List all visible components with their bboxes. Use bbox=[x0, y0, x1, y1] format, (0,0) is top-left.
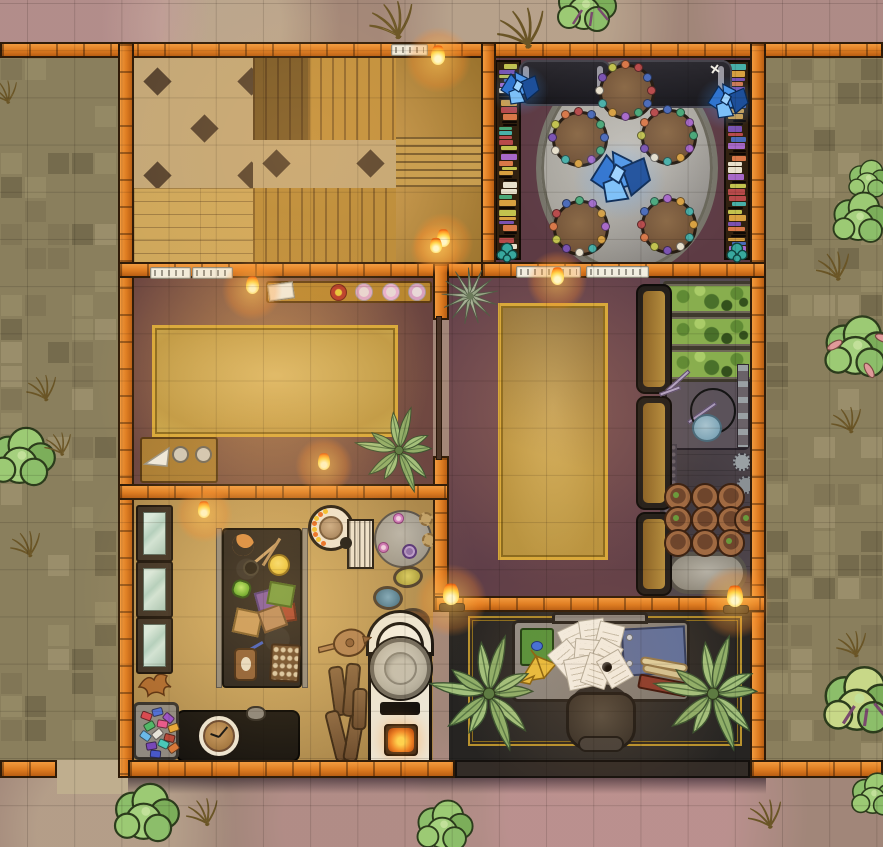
stone-wall bbox=[118, 42, 134, 778]
hall-checker-tile-a bbox=[134, 58, 253, 188]
gold-origami-bird bbox=[510, 648, 562, 692]
office-chair-back bbox=[578, 736, 624, 752]
stone-pot bbox=[733, 453, 751, 471]
hall-bench-rows-lower bbox=[253, 188, 396, 262]
cloth-square-green bbox=[266, 581, 296, 608]
dragon-figurine bbox=[136, 670, 176, 702]
wood-railing bbox=[436, 316, 442, 460]
gear-piece bbox=[419, 512, 433, 526]
potion-flower-pink bbox=[378, 542, 389, 553]
yard-right-cobbles bbox=[766, 58, 883, 760]
small-kettle bbox=[246, 706, 266, 721]
kiln-basin-inner bbox=[384, 652, 417, 685]
stone-wall bbox=[750, 42, 766, 778]
cloth-clasp bbox=[626, 660, 633, 667]
stone-wall bbox=[433, 456, 449, 612]
flower-plate bbox=[355, 283, 373, 301]
dial-knob bbox=[340, 537, 352, 549]
dining-gold-rug bbox=[152, 325, 398, 437]
garden-trough bbox=[667, 552, 747, 594]
purple-dish bbox=[402, 544, 417, 559]
stone-wall bbox=[481, 42, 496, 278]
stone-wall bbox=[750, 760, 883, 778]
flower-plate bbox=[408, 283, 426, 301]
stone-wall bbox=[128, 760, 455, 778]
hall-checker-tile-b bbox=[253, 140, 396, 188]
cloth-clasp bbox=[626, 634, 633, 641]
office-desk-back bbox=[552, 612, 648, 624]
dark-plate bbox=[243, 560, 259, 576]
hall-stairs bbox=[396, 137, 481, 187]
potion-flower-pink bbox=[393, 513, 404, 524]
gem-tray bbox=[133, 702, 179, 760]
hall-plank-floor-lower-left bbox=[134, 188, 253, 262]
dried-flower bbox=[330, 284, 347, 301]
library-oval-rug bbox=[536, 60, 718, 276]
water-basin bbox=[692, 414, 722, 442]
open-book bbox=[267, 281, 295, 301]
bead-abacus bbox=[269, 643, 301, 683]
stone-wall bbox=[455, 760, 750, 778]
pebble-border bbox=[663, 444, 677, 548]
hall-bench-rows-gold bbox=[308, 58, 396, 140]
stone-wall bbox=[0, 760, 57, 778]
stone-wall bbox=[118, 484, 449, 500]
craft-table-rail bbox=[216, 528, 222, 688]
stone-wall bbox=[433, 262, 449, 320]
stone-wall bbox=[481, 262, 766, 278]
stone-wall bbox=[433, 596, 766, 612]
plate-with-utensils bbox=[195, 446, 212, 463]
flower-plate bbox=[382, 283, 400, 301]
building-south-shadow bbox=[128, 778, 766, 794]
hourglass-glass bbox=[241, 657, 251, 671]
lounge-gold-rug bbox=[498, 303, 608, 560]
bellows bbox=[318, 624, 372, 664]
folded-cloth bbox=[143, 444, 173, 470]
craft-table-rail bbox=[302, 528, 308, 688]
kiln-fire bbox=[388, 728, 414, 752]
battle-map bbox=[0, 0, 883, 847]
gold-disc bbox=[268, 554, 290, 576]
yard-left-cobbles bbox=[0, 58, 118, 760]
kiln-slot bbox=[380, 702, 420, 715]
inkwell bbox=[602, 662, 612, 672]
hall-bench-rows-dark bbox=[253, 58, 308, 140]
grinding-dial-center bbox=[319, 516, 343, 540]
plate-with-utensils bbox=[172, 446, 189, 463]
tool-rail bbox=[737, 364, 749, 448]
